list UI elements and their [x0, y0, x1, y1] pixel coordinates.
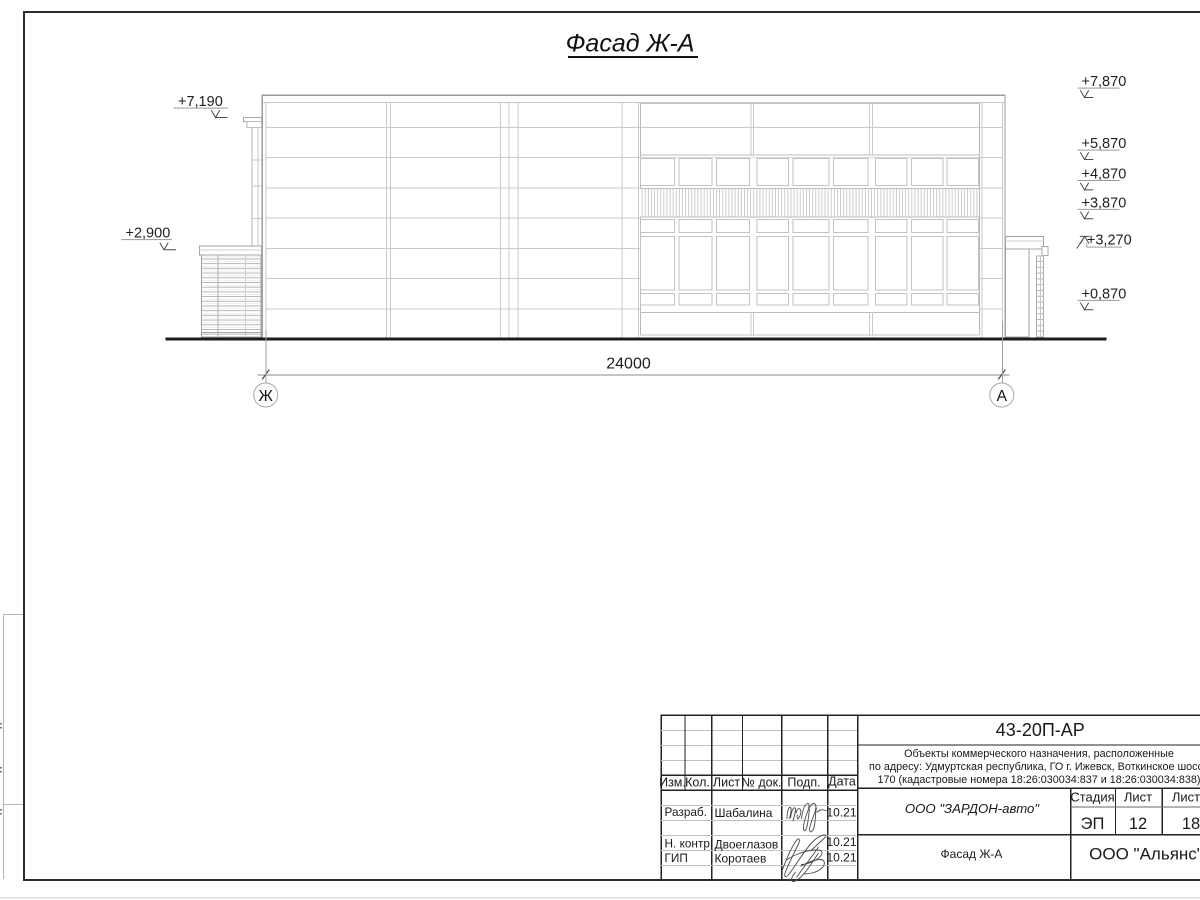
svg-text:ЭП: ЭП [1081, 815, 1105, 833]
svg-text:Шабалина: Шабалина [715, 806, 773, 820]
svg-text:А: А [997, 388, 1008, 405]
svg-text:Лист: Лист [1124, 790, 1152, 805]
svg-text:10.21: 10.21 [826, 835, 856, 849]
svg-text:Листов: Листов [1172, 790, 1200, 805]
svg-text:Изм.: Изм. [659, 776, 686, 790]
svg-text:по адресу: Удмуртская республи: по адресу: Удмуртская республика, ГО г. … [869, 761, 1200, 773]
svg-text:Фасад Ж-А: Фасад Ж-А [941, 847, 1003, 861]
svg-text:Коротаев: Коротаев [715, 852, 767, 866]
svg-text:170 (кадастровые номера 18:26:: 170 (кадастровые номера 18:26:030034:837… [878, 774, 1200, 786]
svg-text:10.21: 10.21 [826, 851, 856, 865]
svg-text:+3,270: +3,270 [1087, 233, 1132, 249]
svg-text:Н. контр.: Н. контр. [665, 837, 714, 851]
svg-text:№ док.: № док. [741, 776, 781, 790]
svg-text:Объекты коммерческого назначен: Объекты коммерческого назначения, распол… [904, 748, 1174, 760]
svg-text:ГИП: ГИП [665, 851, 688, 865]
svg-text:Кол.: Кол. [685, 776, 710, 790]
svg-text:Дата: Дата [828, 775, 856, 789]
svg-text:Разраб.: Разраб. [665, 805, 707, 819]
svg-text:ООО "Альянс": ООО "Альянс" [1089, 845, 1200, 864]
svg-text:Подп.: Подп. [787, 776, 820, 790]
svg-text:Фасад Ж-А: Фасад Ж-А [566, 30, 695, 58]
svg-text:12: 12 [1129, 815, 1147, 833]
svg-text:43-20П-АР: 43-20П-АР [996, 720, 1085, 740]
svg-text:18: 18 [1182, 815, 1200, 833]
svg-text:10.21: 10.21 [826, 806, 856, 820]
svg-text:24000: 24000 [606, 356, 651, 373]
svg-text:ООО "ЗАРДОН-авто": ООО "ЗАРДОН-авто" [905, 801, 1040, 816]
svg-text:Ж: Ж [259, 388, 274, 405]
svg-text:Двоеглазов: Двоеглазов [715, 838, 779, 852]
svg-text:Лист: Лист [713, 776, 740, 790]
svg-text:Стадия: Стадия [1070, 790, 1114, 805]
